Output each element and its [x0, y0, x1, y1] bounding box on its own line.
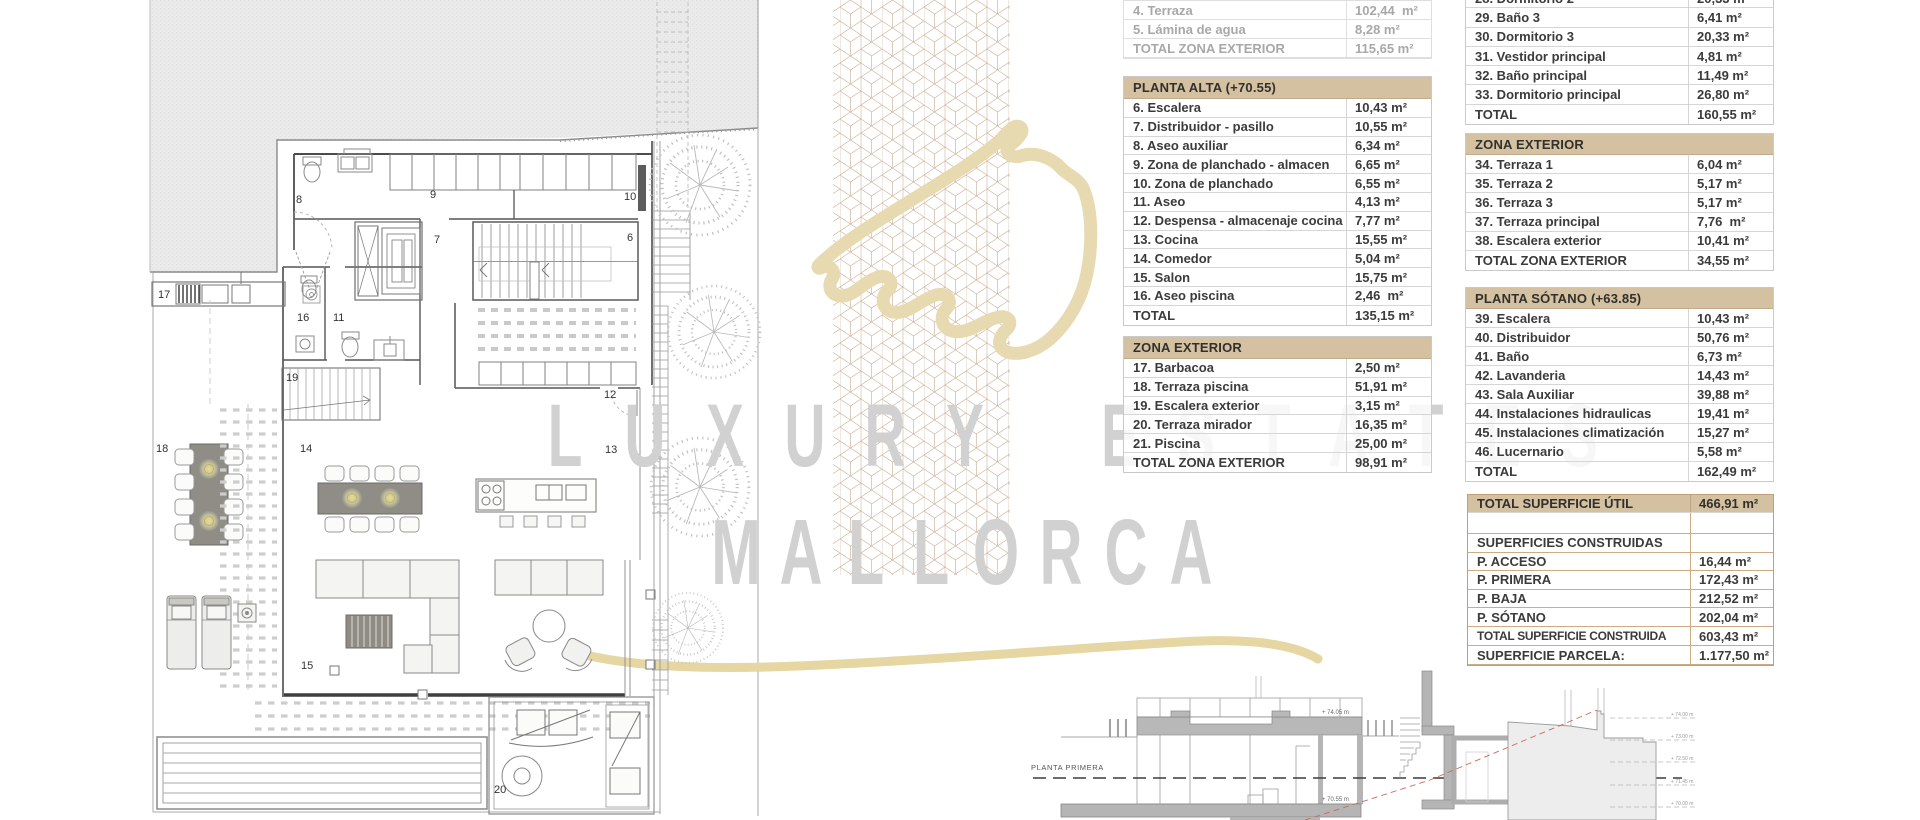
svg-text:8: 8: [296, 194, 302, 206]
svg-text:7: 7: [434, 234, 440, 246]
svg-text:16: 16: [297, 312, 309, 324]
svg-text:15: 15: [301, 660, 313, 672]
svg-text:+ 74.05 m: + 74.05 m: [1322, 710, 1349, 716]
svg-text:+ 70.00 m: + 70.00 m: [1671, 801, 1693, 807]
svg-text:17: 17: [158, 289, 170, 301]
svg-text:11: 11: [333, 312, 344, 324]
svg-text:PLANTA PRIMERA: PLANTA PRIMERA: [1031, 763, 1104, 772]
svg-text:20: 20: [494, 784, 506, 796]
svg-text:6: 6: [627, 232, 633, 244]
svg-text:+ 73.00 m: + 73.00 m: [1671, 734, 1693, 740]
svg-text:10: 10: [624, 191, 636, 203]
svg-text:19: 19: [286, 372, 298, 384]
svg-text:+ 70.55 m: + 70.55 m: [1322, 797, 1349, 803]
svg-text:+ 72.50 m: + 72.50 m: [1671, 756, 1693, 762]
svg-text:9: 9: [430, 189, 436, 201]
svg-text:+ 74.00 m: + 74.00 m: [1671, 712, 1693, 718]
svg-text:+ 71.45 m: + 71.45 m: [1671, 779, 1693, 785]
